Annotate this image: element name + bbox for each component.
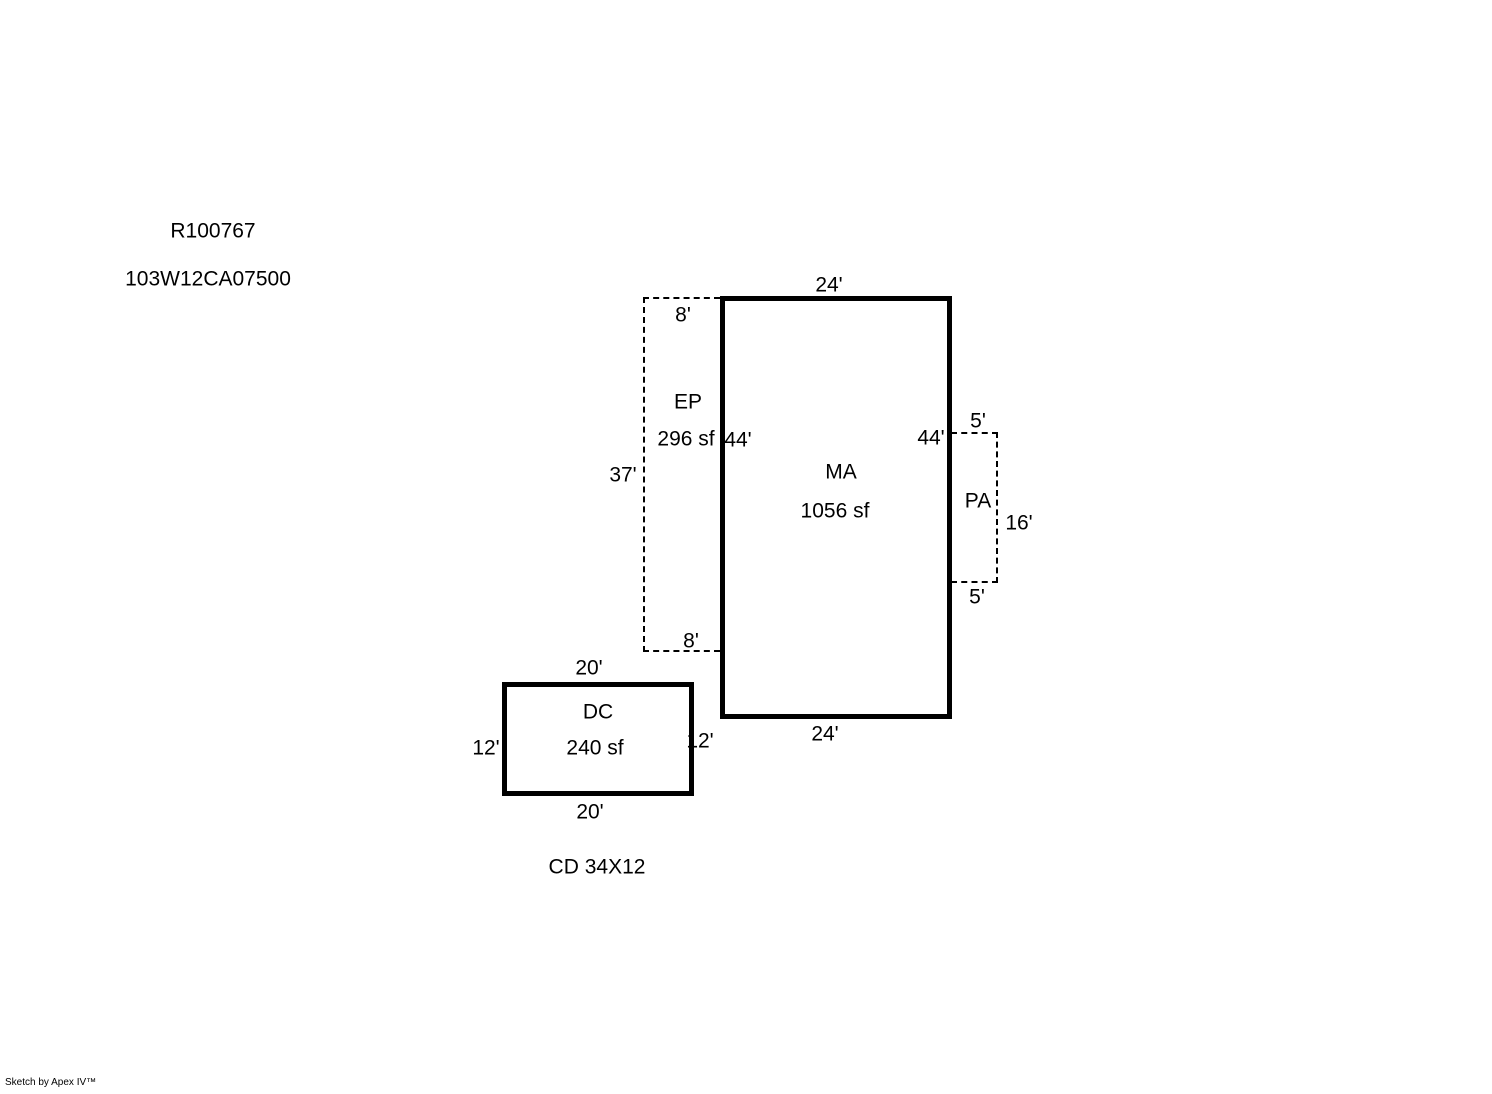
pa-code-label: PA [965, 491, 991, 512]
dc-dim-right: 12' [686, 731, 713, 752]
dc-dim-bottom: 20' [576, 802, 603, 823]
ma-dim-top: 24' [815, 275, 842, 296]
ep-size-label: 296 sf [657, 429, 714, 450]
ep-dim-bottom: 8' [683, 631, 699, 652]
ma-dim-bottom: 24' [811, 724, 838, 745]
dc-code-label: DC [583, 702, 613, 723]
pa-dim-top: 5' [970, 411, 986, 432]
sketch-canvas: R100767 103W12CA07500 24' 44' 44' 24' MA… [0, 0, 1492, 1094]
ma-code-label: MA [825, 462, 857, 483]
pa-dim-right: 16' [1005, 513, 1032, 534]
ep-outline [643, 297, 720, 652]
sketch-credit: Sketch by Apex IV™ [5, 1077, 96, 1089]
ma-dim-right: 44' [917, 428, 944, 449]
record-id-label: R100767 [170, 221, 255, 242]
ep-dim-top: 8' [675, 305, 691, 326]
addition-note-label: CD 34X12 [549, 857, 646, 878]
dc-dim-left: 12' [472, 738, 499, 759]
ma-size-label: 1056 sf [801, 501, 870, 522]
ep-dim-left: 37' [609, 465, 636, 486]
pa-dim-bottom: 5' [969, 587, 985, 608]
ep-code-label: EP [674, 392, 702, 413]
ma-dim-left: 44' [724, 430, 751, 451]
dc-dim-top: 20' [575, 658, 602, 679]
parcel-id-label: 103W12CA07500 [125, 269, 291, 290]
dc-size-label: 240 sf [566, 738, 623, 759]
